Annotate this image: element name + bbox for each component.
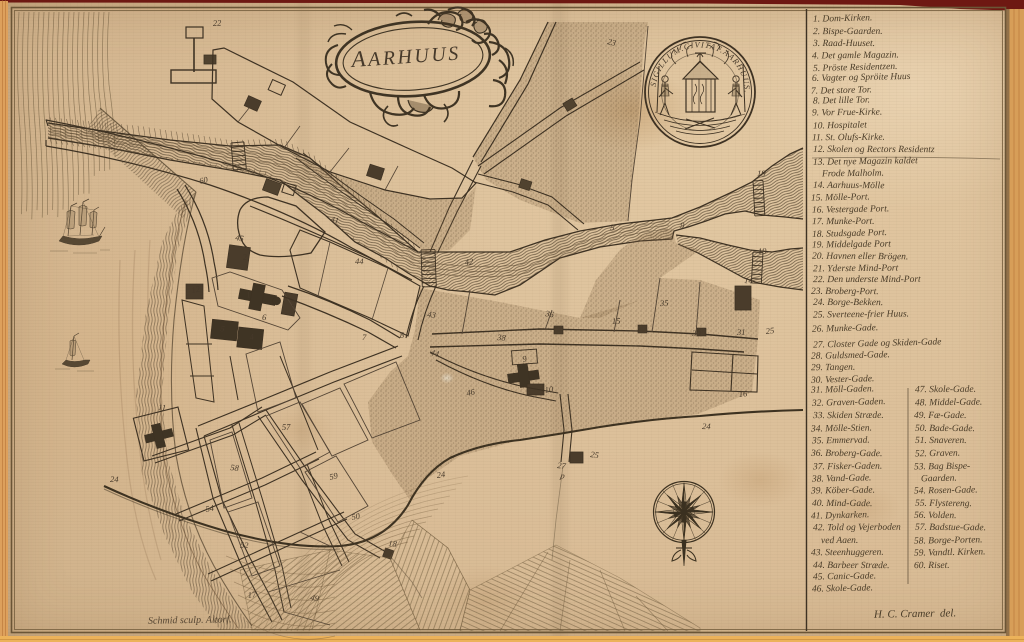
svg-text:11: 11 <box>158 402 167 413</box>
svg-text:35: 35 <box>659 298 669 308</box>
svg-text:24: 24 <box>110 474 119 484</box>
svg-text:24: 24 <box>436 469 446 480</box>
svg-text:52: 52 <box>240 540 249 550</box>
svg-text:44: 44 <box>355 256 364 266</box>
svg-text:22: 22 <box>213 18 223 28</box>
svg-text:57: 57 <box>282 422 292 432</box>
svg-text:25: 25 <box>590 449 600 460</box>
svg-text:31: 31 <box>736 327 746 337</box>
svg-text:54: 54 <box>205 503 216 514</box>
svg-text:58: 58 <box>230 462 240 473</box>
svg-text:15: 15 <box>612 316 621 326</box>
svg-text:AARHUUS: AARHUUS <box>349 39 462 72</box>
svg-text:14: 14 <box>744 275 754 286</box>
svg-text:19: 19 <box>758 246 767 256</box>
svg-text:25: 25 <box>765 325 774 336</box>
svg-text:42: 42 <box>464 256 474 267</box>
svg-text:3: 3 <box>290 298 296 308</box>
svg-text:19: 19 <box>757 168 767 178</box>
svg-text:16: 16 <box>738 388 748 399</box>
svg-text:6: 6 <box>262 312 267 322</box>
svg-text:45: 45 <box>235 232 245 243</box>
svg-text:59: 59 <box>328 470 339 482</box>
svg-text:24: 24 <box>702 421 712 431</box>
svg-text:50: 50 <box>350 510 361 522</box>
svg-text:43: 43 <box>427 309 437 320</box>
svg-text:5: 5 <box>610 222 615 232</box>
svg-text:7: 7 <box>362 332 367 342</box>
svg-text:60: 60 <box>198 174 209 186</box>
svg-text:38: 38 <box>496 332 507 343</box>
svg-text:p: p <box>559 470 566 481</box>
svg-text:30: 30 <box>691 328 702 338</box>
